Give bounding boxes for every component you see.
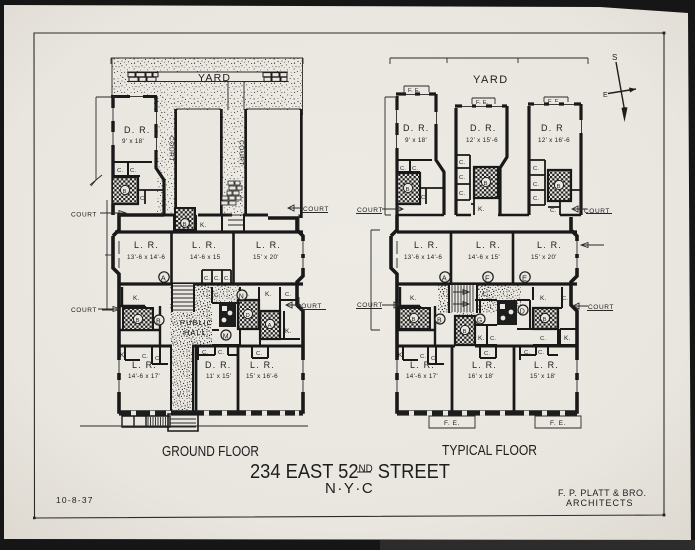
svg-text:E: E [603,92,608,99]
svg-text:C.: C. [538,350,544,356]
svg-text:14'-6 x 17': 14'-6 x 17' [406,373,438,380]
svg-text:D. R.: D. R. [124,125,151,135]
svg-text:COURT: COURT [303,206,329,213]
svg-text:L. R.: L. R. [410,360,435,370]
svg-text:COURT: COURT [238,140,245,166]
svg-text:B: B [484,181,488,187]
svg-text:C.: C. [482,292,488,298]
svg-text:K.: K. [398,352,404,359]
svg-text:K.: K. [285,328,291,335]
svg-text:12' x 15'-6: 12' x 15'-6 [466,137,498,144]
svg-text:D. R.: D. R. [205,360,232,370]
svg-text:N·Y·C: N·Y·C [325,480,374,497]
svg-text:HALL: HALL [184,328,207,337]
svg-text:L. R.: L. R. [250,360,275,370]
svg-text:9' x 18': 9' x 18' [122,138,144,145]
svg-text:ARCHITECTS: ARCHITECTS [566,498,634,508]
svg-text:B: B [136,318,140,324]
svg-text:B: B [412,317,416,323]
svg-text:E: E [522,273,527,282]
svg-text:B: B [437,317,442,324]
svg-text:C.: C. [214,276,220,282]
svg-text:D. R: D. R [541,123,564,133]
svg-text:C.: C. [400,166,406,172]
svg-text:C.: C. [204,276,210,282]
svg-text:16' x 18': 16' x 18' [468,373,494,380]
svg-text:C.: C. [256,351,262,357]
svg-text:F. P. PLATT & BRO.: F. P. PLATT & BRO. [558,488,647,498]
svg-text:COURT: COURT [357,302,383,309]
svg-text:K.: K. [200,222,206,229]
svg-text:YARD: YARD [198,72,231,84]
svg-text:C.: C. [214,293,220,299]
svg-text:C.: C. [490,336,496,342]
svg-text:G: G [477,317,482,324]
svg-text:A: A [442,273,447,282]
svg-text:11' x 15': 11' x 15' [206,373,231,380]
svg-text:C.: C. [459,191,465,197]
svg-text:B: B [557,184,561,190]
svg-text:K.: K. [478,206,484,213]
svg-text:S: S [612,53,617,62]
svg-text:V.: V. [177,393,183,399]
svg-text:B: B [156,318,161,325]
svg-text:C.: C. [562,296,568,302]
svg-text:C.: C. [117,168,123,174]
svg-text:C.: C. [533,166,539,172]
svg-text:M: M [223,333,229,340]
svg-text:D. R.: D. R. [470,123,497,133]
svg-text:15' x 20': 15' x 20' [253,254,279,261]
svg-text:YARD: YARD [473,74,509,86]
svg-text:B: B [183,222,187,228]
svg-text:COURT: COURT [588,304,614,311]
svg-text:C.: C. [459,175,465,181]
svg-text:N: N [239,293,244,300]
svg-text:15' x 18': 15' x 18' [530,373,556,380]
svg-text:B: B [543,317,547,323]
svg-text:C.: C. [412,166,418,172]
svg-text:9' x 18': 9' x 18' [405,137,427,144]
svg-text:F: F [485,273,490,282]
svg-text:A: A [268,323,272,329]
svg-text:C.: C. [550,208,556,214]
svg-text:L. R.: L. R. [414,240,439,250]
svg-text:B: B [123,189,127,195]
svg-text:C.: C. [202,350,208,356]
svg-text:C.: C. [421,195,427,201]
svg-text:C.: C. [130,168,136,174]
svg-text:L. R.: L. R. [134,240,159,250]
svg-text:A: A [161,273,166,282]
svg-text:15' x 16'-6: 15' x 16'-6 [246,373,278,380]
svg-text:B: B [406,187,410,193]
svg-text:C.: C. [484,351,490,357]
svg-text:L. R.: L. R. [132,360,157,370]
svg-text:C.: C. [540,336,546,342]
svg-text:L. R.: L. R. [534,360,559,370]
svg-text:12' x 16'-6: 12' x 16'-6 [538,137,570,144]
svg-text:D: D [246,313,250,319]
svg-text:PUBLIC: PUBLIC [180,318,213,327]
svg-text:L: L [490,305,494,311]
svg-text:13'-6 x 14'-6: 13'-6 x 14'-6 [127,254,165,261]
svg-text:C.: C. [285,292,291,298]
svg-text:C.: C. [218,350,224,356]
svg-text:C.: C. [224,276,230,282]
svg-text:K.: K. [265,291,271,298]
svg-text:L. R.: L. R. [537,240,562,250]
svg-text:F. E.: F. E. [550,420,566,427]
svg-text:14'-6 x 15': 14'-6 x 15' [468,254,500,261]
svg-text:L. R.: L. R. [192,240,217,250]
svg-text:L. R.: L. R. [476,240,501,250]
svg-text:K.: K. [478,335,484,342]
svg-text:COURT: COURT [296,303,322,310]
svg-text:TYPICAL FLOOR: TYPICAL FLOOR [442,442,537,459]
svg-text:B: B [463,329,467,335]
svg-text:COURT: COURT [357,207,383,214]
svg-text:GROUND FLOOR: GROUND FLOOR [162,443,259,460]
svg-text:K.: K. [564,335,570,342]
svg-text:K.: K. [120,352,126,359]
svg-text:15' x 20': 15' x 20' [531,254,557,261]
svg-text:COURT: COURT [168,136,175,162]
svg-text:L. R.: L. R. [256,240,281,250]
svg-text:K.: K. [540,295,546,302]
svg-text:13'-6 x 14'-6: 13'-6 x 14'-6 [404,254,442,261]
svg-text:COURT: COURT [71,212,97,219]
svg-text:K.: K. [133,295,139,302]
svg-text:COURT: COURT [71,307,97,314]
svg-text:D. R.: D. R. [403,123,430,133]
svg-text:L. R.: L. R. [472,360,497,370]
svg-text:C.: C. [533,182,539,188]
svg-text:C.: C. [524,350,530,356]
svg-text:D: D [520,308,525,315]
svg-text:C.: C. [459,160,465,166]
svg-text:10-8-37: 10-8-37 [56,495,94,505]
svg-text:K.: K. [410,295,416,302]
svg-text:14'-6 x 17': 14'-6 x 17' [128,373,160,380]
svg-text:C.: C. [140,196,146,202]
svg-text:C.: C. [533,196,539,202]
svg-text:14'-6 x 15: 14'-6 x 15 [190,254,221,261]
svg-text:F. E.: F. E. [444,420,460,427]
